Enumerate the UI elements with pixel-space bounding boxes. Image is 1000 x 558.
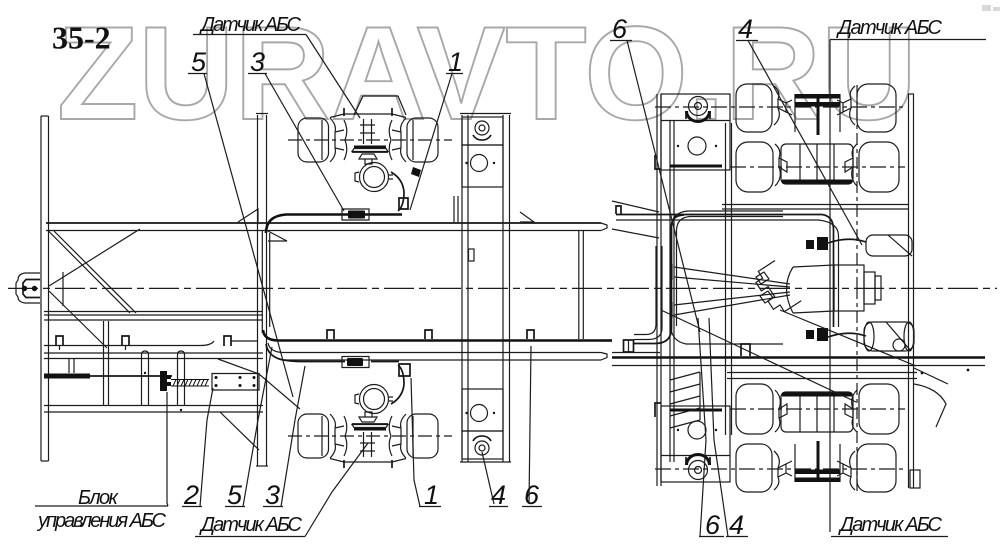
svg-text:35-2: 35-2 [52, 20, 111, 56]
svg-text:1: 1 [448, 47, 463, 77]
svg-text:4: 4 [491, 480, 506, 510]
svg-text:4: 4 [729, 510, 744, 540]
svg-text:1: 1 [424, 480, 439, 510]
svg-text:управления АБС: управления АБС [36, 510, 167, 532]
svg-text:5: 5 [227, 480, 243, 510]
svg-text:6: 6 [612, 14, 628, 44]
svg-text:2: 2 [183, 480, 199, 510]
svg-text:Датчик АБС: Датчик АБС [199, 14, 302, 36]
svg-text:ZURAVTO.RU: ZURAVTO.RU [57, 0, 917, 148]
svg-text:6: 6 [705, 510, 721, 540]
svg-text:Датчик АБС: Датчик АБС [836, 17, 943, 39]
svg-text:5: 5 [191, 47, 207, 77]
svg-text:4: 4 [738, 14, 753, 44]
svg-text:3: 3 [250, 47, 265, 77]
svg-text:6: 6 [524, 480, 540, 510]
svg-text:Датчик АБС: Датчик АБС [199, 514, 303, 536]
svg-text:3: 3 [265, 480, 280, 510]
svg-text:Датчик АБС: Датчик АБС [838, 514, 943, 536]
